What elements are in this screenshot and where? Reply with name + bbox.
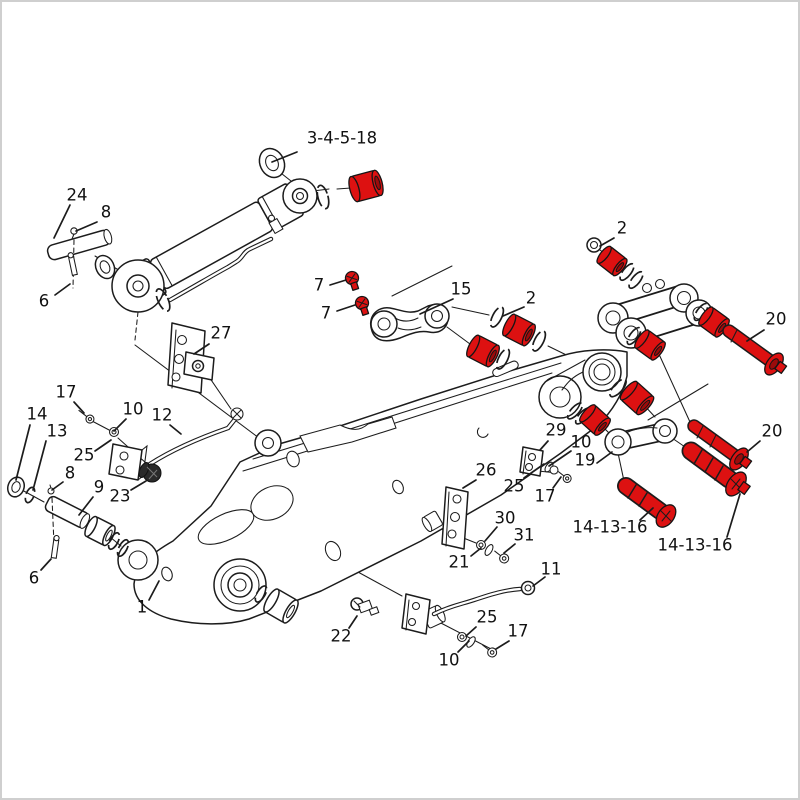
boom-foot-boss-far: [118, 540, 158, 580]
callout-leader-21-33: [471, 548, 481, 556]
callout-leader-6-3: [55, 284, 70, 295]
snap-ring: [24, 486, 37, 504]
callout-layer: 3-4-5-182486771522202014-13-1614-13-1627…: [16, 129, 787, 670]
callout-leader-19-28: [597, 452, 612, 463]
callout-leader-30-31: [485, 527, 497, 541]
callout-label-23-22: 23: [110, 487, 131, 506]
callout-leader-8-2: [76, 222, 97, 231]
callout-leader-13-16: [33, 441, 46, 490]
callout-leader-14-15: [16, 425, 30, 480]
callout-label-10-27: 10: [571, 433, 592, 452]
callout-label-20-10: 20: [762, 422, 783, 441]
callout-label-25-19: 25: [74, 446, 95, 465]
tube-nut: [522, 582, 535, 595]
callout-leader-17-14: [74, 402, 84, 413]
callout-label-27-13: 27: [211, 324, 232, 343]
callout-label-25-29: 25: [504, 477, 525, 496]
cylinder-boss: [255, 430, 281, 456]
callout-leader-8-20: [52, 482, 63, 490]
callout-label-14-13-16-12: 14-13-16: [658, 536, 733, 555]
callout-label-20-9: 20: [766, 310, 787, 329]
grease-fitting: [51, 535, 59, 558]
callout-label-13-16: 13: [47, 422, 68, 441]
mount-plate: [109, 444, 142, 480]
callout-label-12-18: 12: [152, 406, 173, 425]
callout-label-21-33: 21: [449, 553, 470, 572]
callout-label-22-35: 22: [331, 627, 352, 646]
parts-diagram: 3-4-5-182486771522202014-13-1614-13-1627…: [2, 2, 798, 798]
callout-label-2-8: 2: [617, 219, 628, 238]
nut: [458, 633, 467, 642]
bushing-highlight: [347, 169, 386, 203]
grease-fitting-highlight: [354, 295, 372, 317]
boom-cylinder: [92, 144, 386, 313]
callout-label-2-7: 2: [526, 289, 537, 308]
callout-label-17-30: 17: [535, 487, 556, 506]
callout-leader-12-18: [170, 425, 181, 434]
callout-label-15-6: 15: [451, 280, 472, 299]
link-15: [344, 270, 449, 341]
callout-label-7-4: 7: [314, 276, 325, 295]
callout-leader-25-19: [95, 440, 111, 451]
callout-label-31-32: 31: [514, 526, 535, 545]
grease-line-11-group: [351, 582, 535, 659]
callout-label-29-26: 29: [546, 421, 567, 440]
nut: [550, 466, 558, 474]
callout-leader-31-32: [504, 544, 515, 553]
bushing-group-2-right: [587, 238, 645, 290]
pin: [44, 495, 92, 530]
snap-ring: [488, 305, 506, 329]
callout-label-10-17: 10: [123, 400, 144, 419]
callout-leader-6-23: [41, 559, 51, 570]
callout-leader-25-36: [466, 627, 476, 636]
callout-label-11-34: 11: [541, 560, 562, 579]
callout-label-17-14: 17: [56, 383, 77, 402]
callout-leader-14-13-16-12: [727, 494, 740, 537]
nut: [587, 238, 601, 252]
screw: [76, 407, 95, 424]
callout-leader-10-17: [114, 419, 126, 431]
callout-label-19-28: 19: [575, 451, 596, 470]
grease-fitting: [68, 252, 78, 275]
callout-label-26-25: 26: [476, 461, 497, 480]
callout-label-25-36: 25: [477, 608, 498, 627]
callout-leader-7-4: [330, 280, 346, 285]
callout-leader-20-10: [747, 441, 760, 452]
callout-leader-7-5: [337, 305, 355, 311]
callout-label-6-23: 6: [29, 569, 40, 588]
callout-label-7-5: 7: [321, 304, 332, 323]
bushing-highlight: [500, 312, 538, 347]
bracket-27: [168, 323, 214, 393]
callout-leader-23-22: [131, 481, 146, 490]
callout-leader-24-1: [54, 205, 70, 238]
callout-label-24-1: 24: [67, 186, 88, 205]
callout-label-3-4-5-18-0: 3-4-5-18: [307, 129, 377, 148]
bushing-highlight: [464, 333, 502, 368]
callout-label-8-20: 8: [65, 464, 76, 483]
screenshot-frame: 3-4-5-182486771522202014-13-1614-13-1627…: [0, 0, 800, 800]
callout-leader-2-8: [600, 238, 614, 246]
callout-label-30-31: 30: [495, 509, 516, 528]
callout-leader-17-38: [496, 641, 509, 649]
callout-label-6-3: 6: [39, 292, 50, 311]
callout-label-10-37: 10: [439, 651, 460, 670]
callout-label-1-24: 1: [137, 598, 148, 617]
callout-label-14-13-16-11: 14-13-16: [573, 518, 648, 537]
snap-ring: [315, 184, 331, 210]
callout-label-8-2: 8: [101, 203, 112, 222]
callout-label-14-15: 14: [27, 405, 48, 424]
callout-label-17-38: 17: [508, 622, 529, 641]
callout-leader-20-9: [747, 330, 764, 341]
callout-label-9-21: 9: [94, 478, 105, 497]
grease-fitting-22: [351, 598, 379, 615]
